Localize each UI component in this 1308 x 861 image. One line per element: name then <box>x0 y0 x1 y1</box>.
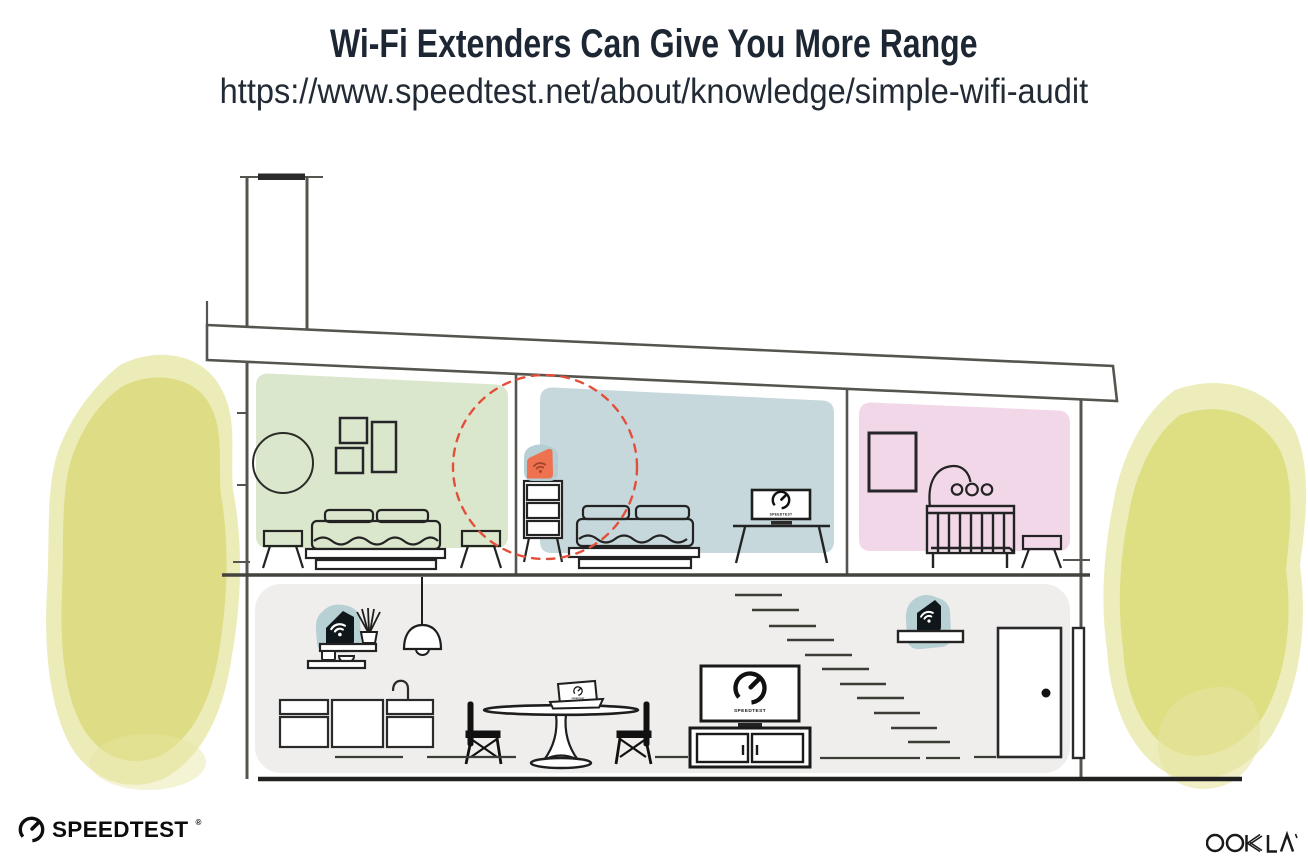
ookla-letter-o2 <box>1227 835 1243 851</box>
speedtest-logo: SPEEDTEST ® <box>18 816 201 843</box>
tv-downstairs-base <box>738 723 762 727</box>
ookla-letter-l <box>1268 835 1277 852</box>
table-base <box>531 758 591 768</box>
nursery-pink-wall <box>859 403 1070 552</box>
ookla-letter-a <box>1281 835 1293 852</box>
chimney <box>240 174 323 334</box>
watercolor-bush-right <box>1103 383 1306 789</box>
bedroom-blue-wall <box>540 388 834 554</box>
wall-column <box>1073 628 1084 758</box>
ookla-trademark-tick <box>1296 834 1298 838</box>
house-illustration: SPEEDTEST <box>0 0 1308 861</box>
ookla-logo <box>1206 829 1302 855</box>
entry-door <box>998 628 1061 757</box>
infographic-canvas: Wi-Fi Extenders Can Give You More Range … <box>0 0 1308 861</box>
registered-trademark: ® <box>195 818 201 827</box>
floor-shadow-lines <box>335 757 996 758</box>
wall-shelf-upper <box>320 644 376 651</box>
tv-upstairs-label: SPEEDTEST <box>770 513 793 517</box>
speedtest-wordmark: SPEEDTEST <box>52 817 188 843</box>
door-knob <box>1042 689 1051 698</box>
bedroom-blue: SPEEDTEST <box>540 388 834 569</box>
nursery-pink <box>859 403 1070 569</box>
tv-downstairs: SPEEDTEST <box>701 666 799 727</box>
tv-downstairs-label: SPEEDTEST <box>734 708 766 714</box>
lower-floor: SPEEDTEST SPEEDTEST <box>255 577 1084 773</box>
tv-upstairs-base <box>771 521 792 525</box>
wall-shelf-lower <box>308 661 365 668</box>
wall-shelf-right <box>898 631 963 642</box>
bedroom-green <box>253 374 508 570</box>
media-console <box>690 728 810 767</box>
speedtest-gauge-icon <box>18 816 45 843</box>
ookla-letter-k <box>1247 835 1263 852</box>
watercolor-bush-left <box>46 355 240 790</box>
ookla-letter-o1 <box>1207 835 1223 851</box>
